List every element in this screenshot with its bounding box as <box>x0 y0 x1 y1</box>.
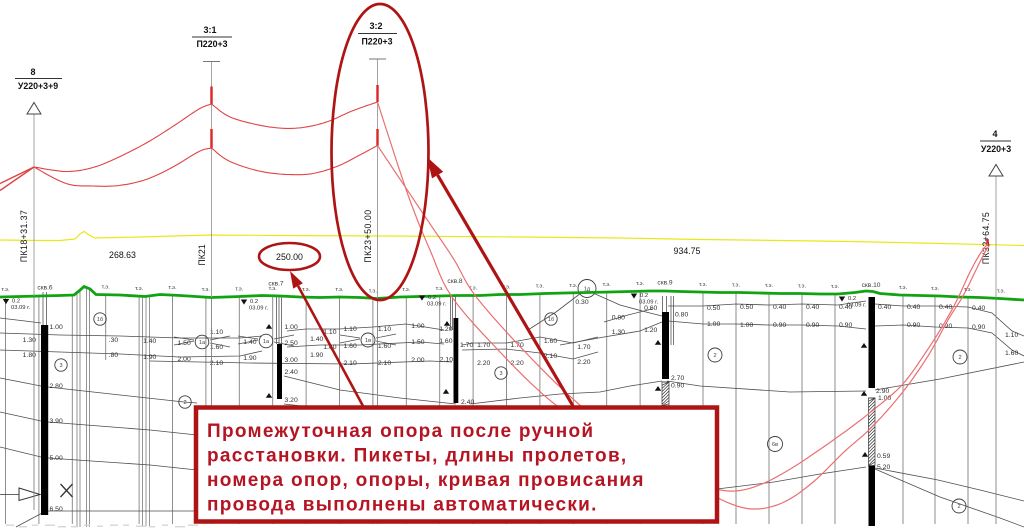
svg-text:ПК23+50.00: ПК23+50.00 <box>363 209 373 262</box>
svg-text:1.60: 1.60 <box>439 338 452 345</box>
svg-text:т.э.: т.э. <box>536 284 545 290</box>
svg-text:0.80: 0.80 <box>612 315 625 322</box>
svg-text:т.э.: т.э. <box>302 287 311 293</box>
svg-text:03.09 г.: 03.09 г. <box>639 300 659 306</box>
svg-text:03.09 г.: 03.09 г. <box>427 302 447 308</box>
svg-text:1.60: 1.60 <box>544 338 557 345</box>
svg-text:т.э.: т.э. <box>335 287 344 293</box>
svg-text:268.63: 268.63 <box>109 250 136 260</box>
svg-text:0.90: 0.90 <box>806 322 819 329</box>
svg-text:0.2: 0.2 <box>848 296 856 302</box>
svg-text:2.90: 2.90 <box>876 388 889 395</box>
svg-text:2.20: 2.20 <box>511 360 524 367</box>
svg-text:ПК21: ПК21 <box>197 244 207 265</box>
svg-text:0.50: 0.50 <box>740 304 753 311</box>
svg-text:1а: 1а <box>199 340 206 346</box>
svg-text:2.10: 2.10 <box>378 360 391 367</box>
svg-text:0.40: 0.40 <box>907 304 920 311</box>
svg-text:У220+3: У220+3 <box>981 144 1011 154</box>
svg-text:1.50: 1.50 <box>411 339 424 346</box>
svg-text:т.э.: т.э. <box>732 283 741 289</box>
svg-text:1.70: 1.70 <box>577 344 590 351</box>
svg-text:0.40: 0.40 <box>939 304 952 311</box>
svg-text:1.00: 1.00 <box>740 322 753 329</box>
svg-text:250.00: 250.00 <box>276 252 303 262</box>
svg-text:провода выполнены автоматическ: провода выполнены автоматически. <box>207 495 598 516</box>
svg-text:1.90: 1.90 <box>310 352 323 359</box>
svg-text:0.59: 0.59 <box>877 453 890 460</box>
svg-text:т.э.: т.э. <box>831 284 840 290</box>
svg-text:1.70: 1.70 <box>460 342 473 349</box>
svg-text:0.90: 0.90 <box>839 322 852 329</box>
svg-text:1.90: 1.90 <box>243 355 256 362</box>
svg-text:1б: 1б <box>548 317 554 323</box>
svg-text:т.э.: т.э. <box>168 285 177 291</box>
svg-text:2.40: 2.40 <box>285 369 298 376</box>
svg-text:У220+3+9: У220+3+9 <box>18 81 58 91</box>
svg-text:1.10: 1.10 <box>1005 332 1018 339</box>
svg-text:.80: .80 <box>109 352 119 359</box>
svg-text:2: 2 <box>183 400 186 406</box>
svg-text:т.э.: т.э. <box>603 282 612 288</box>
svg-text:3: 3 <box>499 371 502 377</box>
svg-text:0.2: 0.2 <box>250 299 258 305</box>
svg-text:1.50: 1.50 <box>178 340 191 347</box>
svg-text:1в: 1в <box>365 338 371 344</box>
svg-text:3:1: 3:1 <box>203 25 216 35</box>
svg-text:Промежуточная опора после ручн: Промежуточная опора после ручной <box>207 421 594 442</box>
svg-text:0.90: 0.90 <box>907 322 920 329</box>
svg-text:4: 4 <box>992 129 997 139</box>
svg-text:скв.10: скв.10 <box>862 282 881 289</box>
svg-text:2: 2 <box>713 353 716 359</box>
svg-text:0.2: 0.2 <box>12 299 20 305</box>
svg-text:2.10: 2.10 <box>344 360 357 367</box>
svg-text:2.00: 2.00 <box>178 356 191 363</box>
svg-text:2.10: 2.10 <box>440 357 453 364</box>
svg-text:1.00: 1.00 <box>411 323 424 330</box>
svg-text:03.09 г.: 03.09 г. <box>11 305 31 311</box>
svg-text:т.э.: т.э. <box>997 289 1006 295</box>
svg-text:т.э.: т.э. <box>135 286 144 292</box>
svg-text:т.э.: т.э. <box>369 288 378 294</box>
svg-text:1.20: 1.20 <box>644 327 657 334</box>
svg-text:0.60: 0.60 <box>644 305 657 312</box>
svg-text:скв.8: скв.8 <box>447 278 463 285</box>
svg-text:0.2: 0.2 <box>428 295 436 301</box>
svg-text:скв.7: скв.7 <box>268 281 284 288</box>
svg-text:0.2: 0.2 <box>640 293 648 299</box>
svg-text:скв.6: скв.6 <box>37 285 53 292</box>
svg-text:номера опор, опоры, кривая про: номера опор, опоры, кривая провисания <box>207 470 645 491</box>
svg-text:3.90: 3.90 <box>50 418 63 425</box>
svg-text:6.50: 6.50 <box>50 506 63 513</box>
svg-text:т.э.: т.э. <box>931 286 940 292</box>
svg-text:0.40: 0.40 <box>773 304 786 311</box>
svg-text:т.э.: т.э. <box>102 285 111 291</box>
svg-text:1.10: 1.10 <box>344 326 357 333</box>
svg-text:2.50: 2.50 <box>285 340 298 347</box>
svg-text:т.э.: т.э. <box>235 287 244 293</box>
svg-text:0.80: 0.80 <box>675 312 688 319</box>
svg-text:т.э.: т.э. <box>798 284 807 290</box>
svg-text:934.75: 934.75 <box>674 246 701 256</box>
svg-text:5.20: 5.20 <box>877 464 890 471</box>
svg-text:1.90: 1.90 <box>143 354 156 361</box>
svg-text:2: 2 <box>958 355 961 361</box>
svg-text:т.э.: т.э. <box>699 282 708 288</box>
svg-text:расстановки. Пикеты, длины про: расстановки. Пикеты, длины пролетов, <box>207 446 628 467</box>
svg-text:ПК18+31.37: ПК18+31.37 <box>19 210 29 262</box>
svg-text:1.40: 1.40 <box>143 338 156 345</box>
svg-text:т.э.: т.э. <box>202 287 211 293</box>
svg-text:1.10: 1.10 <box>378 326 391 333</box>
svg-text:2.00: 2.00 <box>411 357 424 364</box>
svg-text:2.80: 2.80 <box>50 383 63 390</box>
svg-text:6в: 6в <box>772 442 778 448</box>
svg-text:1.00: 1.00 <box>50 324 63 331</box>
svg-text:0.90: 0.90 <box>972 324 985 331</box>
svg-text:т.э.: т.э. <box>765 283 774 289</box>
svg-text:т.э.: т.э. <box>436 286 445 292</box>
svg-text:1а: 1а <box>263 339 270 345</box>
svg-text:3.00: 3.00 <box>285 357 298 364</box>
svg-text:1.30: 1.30 <box>612 329 625 336</box>
svg-text:3: 3 <box>59 363 62 369</box>
svg-text:1.60: 1.60 <box>344 343 357 350</box>
svg-text:П220+3: П220+3 <box>196 39 227 49</box>
svg-text:.30: .30 <box>109 337 119 344</box>
svg-text:3:2: 3:2 <box>369 21 382 31</box>
svg-text:0.90: 0.90 <box>773 322 786 329</box>
svg-text:т.э.: т.э. <box>1 287 10 293</box>
svg-text:1.00: 1.00 <box>285 324 298 331</box>
svg-text:т.э.: т.э. <box>899 285 908 291</box>
svg-text:1б: 1б <box>97 317 103 323</box>
svg-text:0.40: 0.40 <box>806 304 819 311</box>
svg-text:0.50: 0.50 <box>707 305 720 312</box>
svg-text:скв.9: скв.9 <box>657 280 673 287</box>
svg-text:1.70: 1.70 <box>477 342 490 349</box>
svg-text:1.20: 1.20 <box>439 326 452 333</box>
svg-text:3.20: 3.20 <box>285 397 298 404</box>
svg-text:5.00: 5.00 <box>50 455 63 462</box>
svg-text:0.90: 0.90 <box>671 383 684 390</box>
svg-text:03.09 г.: 03.09 г. <box>847 303 867 309</box>
svg-text:1.40: 1.40 <box>310 336 323 343</box>
svg-text:0.30: 0.30 <box>575 299 588 306</box>
svg-text:П220+3: П220+3 <box>361 37 392 47</box>
svg-text:03.09 г.: 03.09 г. <box>249 306 269 312</box>
svg-text:2: 2 <box>957 504 960 510</box>
svg-text:т.э.: т.э. <box>569 283 578 289</box>
svg-text:1.60: 1.60 <box>1005 350 1018 357</box>
svg-text:8: 8 <box>30 67 35 77</box>
svg-text:т.э.: т.э. <box>636 281 645 287</box>
svg-text:т.э.: т.э. <box>402 287 411 293</box>
svg-text:2.20: 2.20 <box>577 359 590 366</box>
svg-text:2.70: 2.70 <box>671 375 684 382</box>
svg-text:1.00: 1.00 <box>707 321 720 328</box>
svg-text:0.40: 0.40 <box>972 305 985 312</box>
svg-text:1.60: 1.60 <box>378 343 391 350</box>
svg-text:2.20: 2.20 <box>477 360 490 367</box>
svg-text:2.40: 2.40 <box>461 399 474 406</box>
svg-text:0.40: 0.40 <box>878 304 891 311</box>
